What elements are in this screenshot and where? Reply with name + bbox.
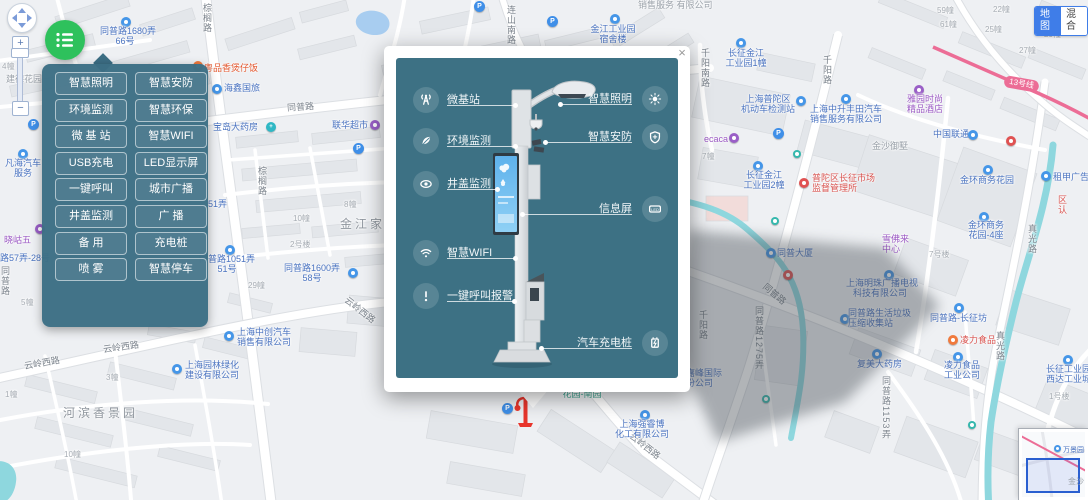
feature-button-13[interactable]: 充电桩 [135, 232, 207, 255]
feature-button-11[interactable]: 广 播 [135, 205, 207, 228]
feature-button-12[interactable]: 备 用 [55, 232, 127, 255]
pan-compass-control[interactable] [7, 3, 37, 33]
map-type-map-button[interactable]: 地图 [1035, 7, 1061, 35]
connector-line [447, 146, 515, 147]
connector-dot [513, 103, 518, 108]
minimap-area-label: 金沙 [1068, 476, 1084, 487]
connector-dot [543, 140, 548, 145]
connector-dot [513, 256, 518, 261]
close-icon[interactable]: × [676, 45, 688, 60]
pan-right-icon[interactable] [27, 14, 32, 22]
pan-down-icon[interactable] [18, 23, 26, 28]
lamp-post-illustration [396, 58, 678, 378]
feature-button-15[interactable]: 智慧停车 [135, 258, 207, 281]
feature-button-10[interactable]: 井盖监测 [55, 205, 127, 228]
map-type-hybrid-button[interactable]: 混合 [1061, 7, 1087, 35]
leaf-icon [413, 128, 439, 154]
connector-dot [495, 187, 500, 192]
svg-text:LED: LED [651, 207, 659, 212]
device-popup: × [384, 46, 690, 392]
charger-icon [642, 330, 668, 356]
alarm-icon [413, 283, 439, 309]
antenna-icon [413, 87, 439, 113]
map-type-toggle: 地图 混合 [1034, 6, 1088, 36]
feature-button-3[interactable]: 智慧环保 [135, 99, 207, 122]
connector-line [447, 301, 514, 302]
connector-dot [520, 212, 525, 217]
connector-line [447, 189, 497, 190]
connector-dot [558, 102, 563, 107]
pan-left-icon[interactable] [12, 14, 17, 22]
connector-line [522, 214, 632, 215]
connector-dot [539, 346, 544, 351]
connector-line [545, 142, 632, 143]
feature-button-2[interactable]: 环境监测 [55, 99, 127, 122]
minimap-poi-icon [1054, 445, 1061, 452]
connector-dot [512, 299, 517, 304]
popup-panel: 微基站环境监测井盖监测智慧WIFI一键呼叫报警智慧照明智慧安防LED信息屏汽车充… [396, 58, 678, 378]
feature-button-1[interactable]: 智慧安防 [135, 72, 207, 95]
feature-button-9[interactable]: 城市广播 [135, 178, 207, 201]
feature-button-6[interactable]: USB充电 [55, 152, 127, 175]
pan-up-icon[interactable] [18, 8, 26, 13]
zoom-out-button[interactable]: − [12, 101, 29, 116]
connector-line [541, 348, 632, 349]
connector-dot [513, 144, 518, 149]
smart-lamppost-map-app: 同普路1680弄66号建德花园4幢粤品香煲仔饭海鑫国旅同普路宝岛大药房+联华超市… [0, 0, 1088, 500]
connector-line [560, 104, 632, 105]
zoom-slider-handle[interactable] [11, 48, 29, 58]
wifi-icon [413, 240, 439, 266]
feature-panel: 智慧照明智慧安防环境监测智慧环保微 基 站智慧WIFIUSB充电LED显示屏一键… [42, 64, 208, 327]
sun-icon [642, 86, 668, 112]
connector-line [447, 258, 515, 259]
list-icon [54, 29, 76, 51]
feature-button-5[interactable]: 智慧WIFI [135, 125, 207, 148]
feature-button-0[interactable]: 智慧照明 [55, 72, 127, 95]
connector-line [447, 105, 515, 106]
feature-button-4[interactable]: 微 基 站 [55, 125, 127, 148]
feature-button-8[interactable]: 一键呼叫 [55, 178, 127, 201]
menu-button[interactable] [45, 20, 85, 60]
shield-icon [642, 124, 668, 150]
feature-button-7[interactable]: LED显示屏 [135, 152, 207, 175]
overview-minimap[interactable]: 万景园 金沙 [1019, 429, 1088, 500]
feature-button-14[interactable]: 喷 雾 [55, 258, 127, 281]
eye-icon [413, 171, 439, 197]
minimap-poi-label: 万景园 [1063, 445, 1084, 455]
led-icon: LED [642, 196, 668, 222]
